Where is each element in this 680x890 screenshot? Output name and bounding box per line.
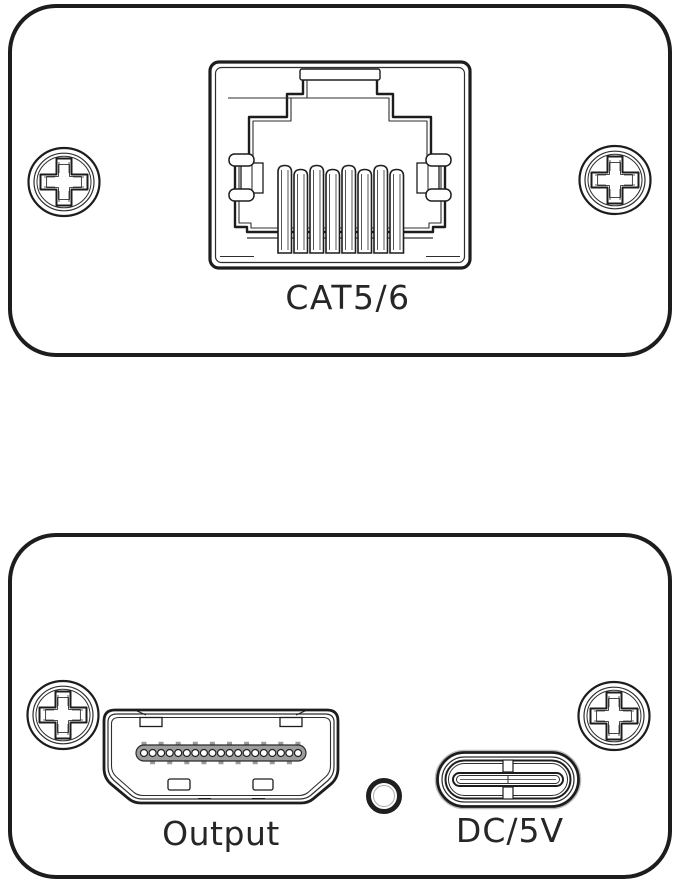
diagram-artwork [0, 0, 680, 890]
phillips-screw-icon [579, 682, 650, 750]
dc5v-label: DC/5V [410, 814, 610, 847]
phillips-screw-icon [29, 148, 100, 216]
faceplate-diagram: CAT5/6 Output DC/5V [0, 0, 680, 890]
led-indicator-icon [369, 781, 400, 812]
hdmi-port-icon [104, 710, 338, 803]
rj45-port-icon [210, 62, 470, 268]
phillips-screw-icon [580, 146, 651, 214]
phillips-screw-icon [28, 681, 99, 749]
cat56-label: CAT5/6 [238, 281, 458, 314]
usb-c-port-icon [436, 751, 581, 809]
output-label: Output [121, 817, 321, 850]
